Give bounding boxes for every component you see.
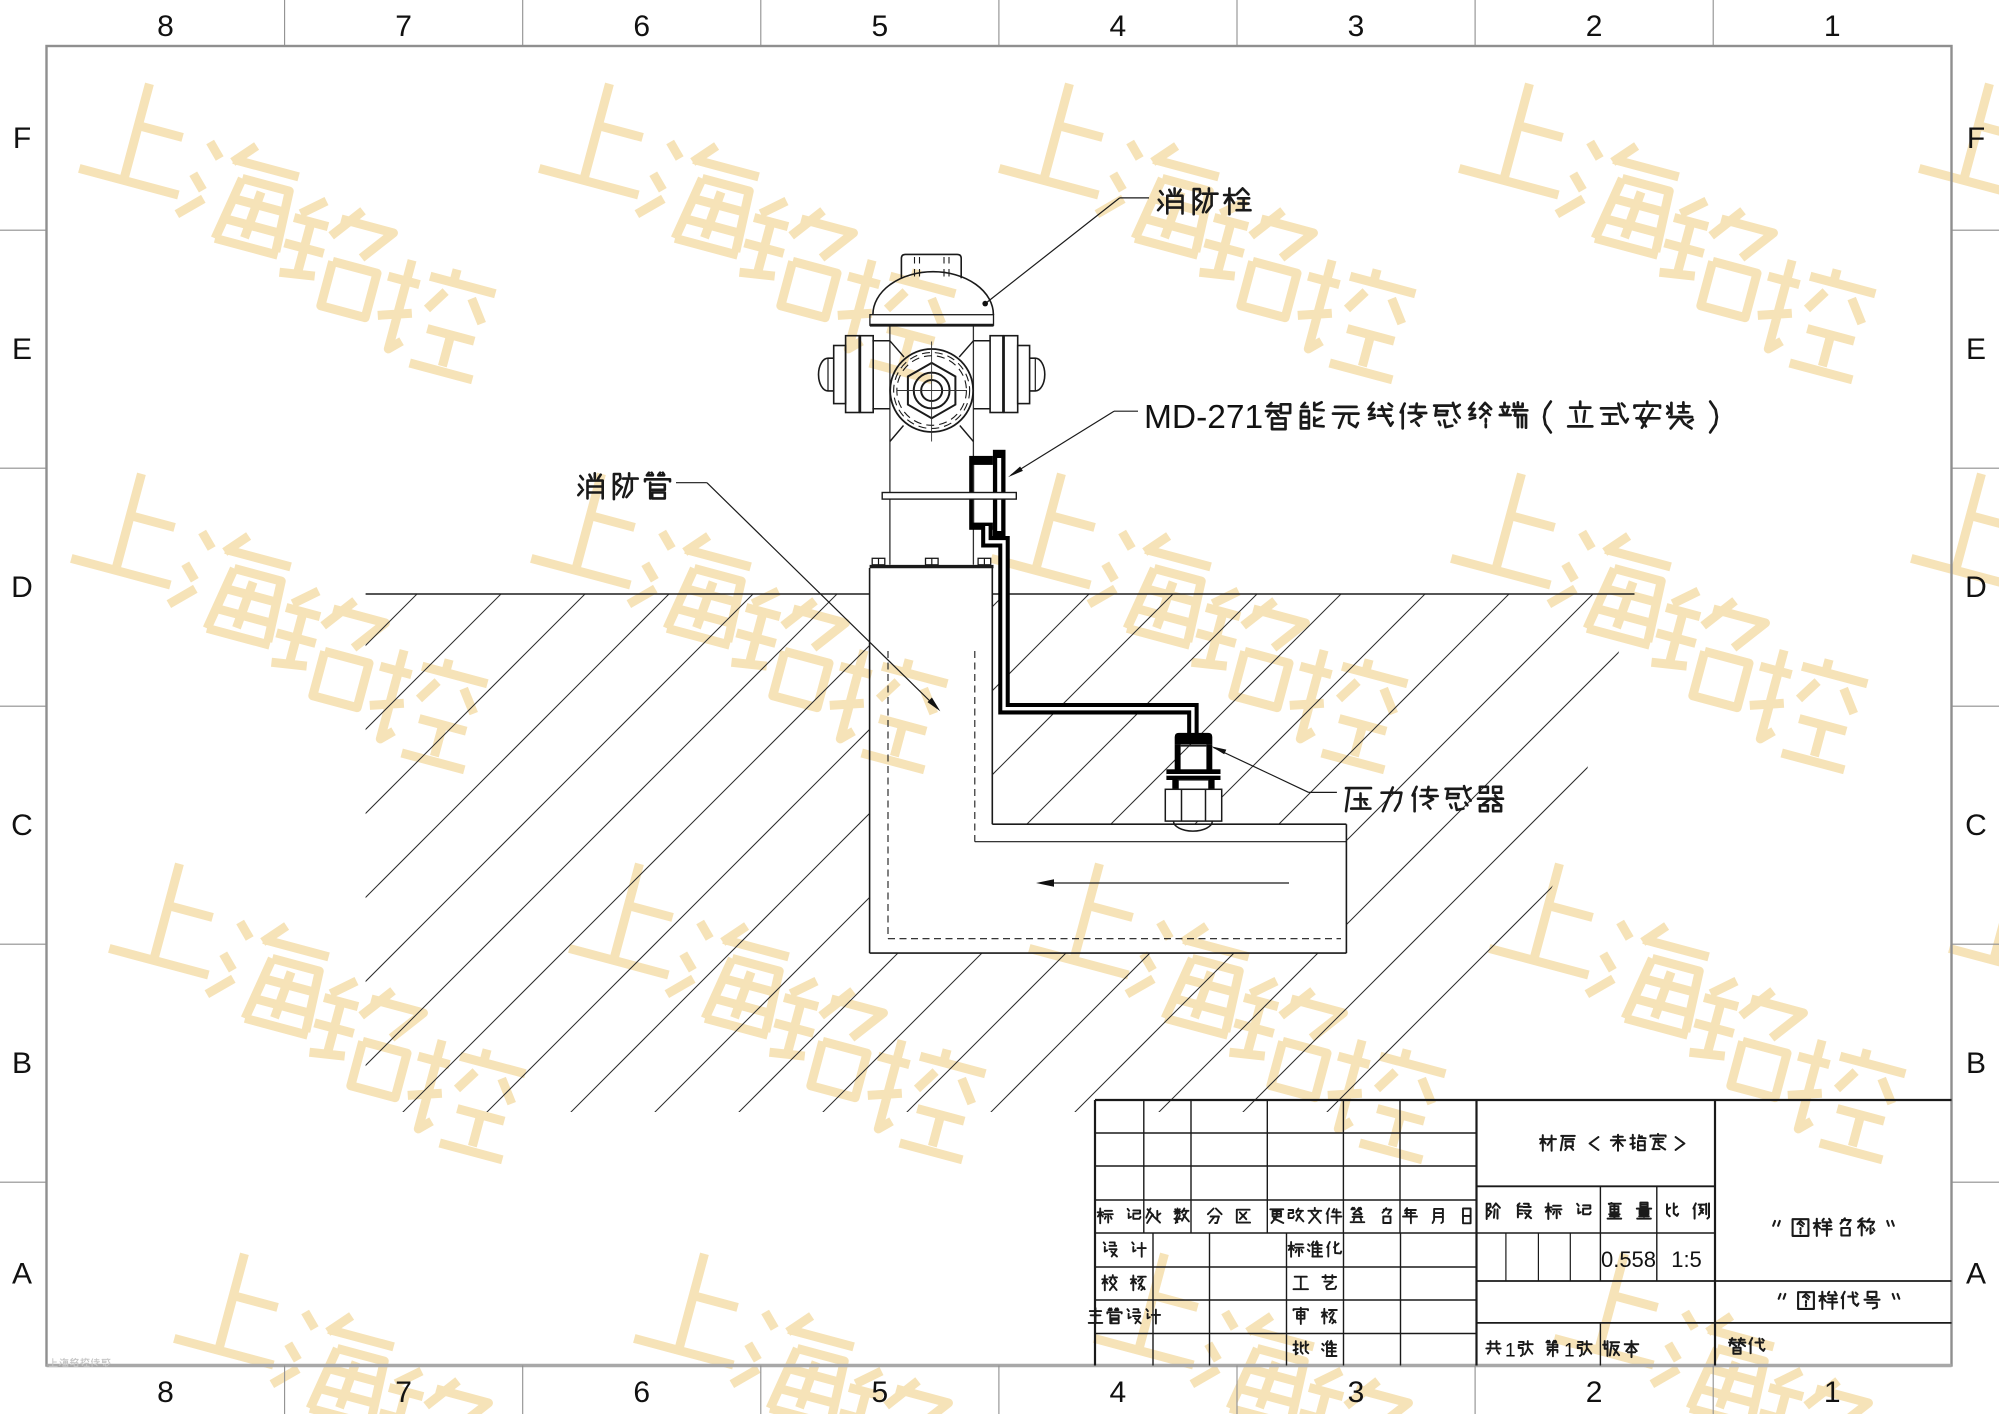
- svg-text:E: E: [12, 333, 32, 366]
- svg-text:7: 7: [395, 10, 412, 43]
- svg-text:1: 1: [1564, 1341, 1575, 1362]
- svg-text:6: 6: [633, 1376, 650, 1409]
- svg-text:1: 1: [1824, 10, 1841, 43]
- svg-text:MD-271: MD-271: [1144, 399, 1263, 436]
- svg-text:A: A: [12, 1258, 32, 1291]
- svg-text:2: 2: [1586, 1376, 1603, 1409]
- svg-text:5: 5: [871, 10, 888, 43]
- svg-text:A: A: [1966, 1258, 1986, 1291]
- svg-text:B: B: [12, 1047, 32, 1080]
- svg-text:7: 7: [395, 1376, 412, 1409]
- svg-text:3: 3: [1348, 1376, 1365, 1409]
- svg-text:8: 8: [157, 1376, 174, 1409]
- svg-text:F: F: [13, 122, 31, 155]
- svg-text:1: 1: [1505, 1341, 1516, 1362]
- svg-text:C: C: [11, 809, 33, 842]
- svg-text:6: 6: [633, 10, 650, 43]
- svg-text:C: C: [1965, 809, 1987, 842]
- svg-text:4: 4: [1110, 10, 1127, 43]
- svg-text:3: 3: [1348, 10, 1365, 43]
- svg-text:D: D: [11, 571, 33, 604]
- svg-text:F: F: [1967, 122, 1985, 155]
- svg-text:4: 4: [1110, 1376, 1127, 1409]
- svg-text:1:5: 1:5: [1671, 1247, 1702, 1272]
- svg-text:2: 2: [1586, 10, 1603, 43]
- svg-text:1: 1: [1824, 1376, 1841, 1409]
- svg-text:D: D: [1965, 571, 1987, 604]
- svg-text:8: 8: [157, 10, 174, 43]
- svg-text:B: B: [1966, 1047, 1986, 1080]
- svg-text:0.558: 0.558: [1601, 1247, 1656, 1272]
- svg-text:5: 5: [871, 1376, 888, 1409]
- svg-text:E: E: [1966, 333, 1986, 366]
